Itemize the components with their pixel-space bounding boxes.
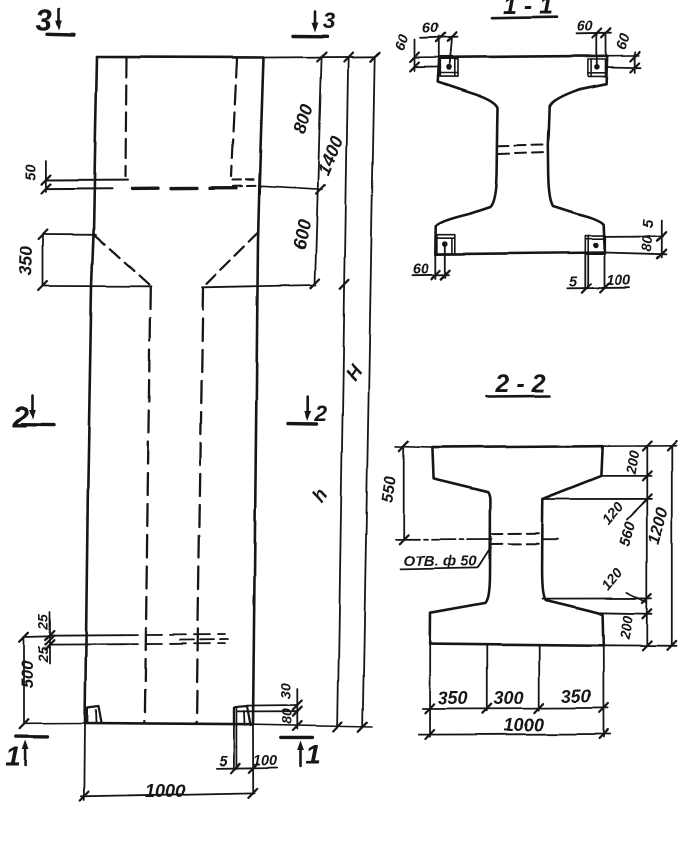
svg-text:60: 60 — [422, 21, 438, 37]
svg-text:5: 5 — [219, 754, 228, 770]
svg-text:1000: 1000 — [145, 781, 185, 801]
svg-text:1000: 1000 — [504, 715, 544, 735]
svg-text:1: 1 — [5, 741, 21, 772]
svg-text:2: 2 — [12, 401, 30, 434]
svg-text:550: 550 — [379, 475, 400, 504]
svg-text:2 - 2: 2 - 2 — [494, 370, 545, 398]
svg-text:H: H — [342, 360, 368, 384]
svg-text:5: 5 — [640, 219, 657, 228]
svg-text:50: 50 — [24, 164, 40, 180]
svg-text:60: 60 — [614, 32, 634, 52]
svg-text:ОТВ. ф 50: ОТВ. ф 50 — [403, 553, 478, 570]
svg-text:100: 100 — [607, 273, 631, 289]
svg-text:800: 800 — [289, 102, 317, 137]
svg-text:60: 60 — [392, 33, 412, 53]
svg-text:120: 120 — [599, 565, 626, 593]
svg-text:1: 1 — [305, 739, 321, 770]
svg-text:600: 600 — [289, 218, 315, 252]
svg-text:h: h — [309, 485, 333, 507]
svg-text:25: 25 — [35, 614, 51, 631]
svg-text:1200: 1200 — [645, 505, 672, 546]
svg-text:500: 500 — [19, 659, 37, 687]
svg-text:5: 5 — [569, 275, 578, 291]
svg-text:350: 350 — [15, 245, 36, 276]
svg-text:300: 300 — [494, 688, 524, 708]
svg-text:200: 200 — [616, 614, 636, 641]
svg-text:3: 3 — [323, 8, 335, 33]
svg-text:100: 100 — [253, 753, 277, 769]
svg-text:350: 350 — [561, 687, 591, 707]
svg-text:560: 560 — [616, 519, 639, 548]
svg-text:80: 80 — [279, 708, 295, 724]
svg-text:60: 60 — [413, 262, 429, 278]
svg-text:3: 3 — [36, 4, 53, 37]
svg-text:80: 80 — [638, 235, 655, 252]
svg-text:350: 350 — [438, 688, 468, 708]
svg-text:25: 25 — [35, 646, 51, 663]
svg-text:60: 60 — [577, 19, 593, 35]
svg-text:200: 200 — [622, 449, 642, 476]
svg-text:30: 30 — [278, 683, 294, 699]
svg-text:2: 2 — [314, 401, 328, 426]
